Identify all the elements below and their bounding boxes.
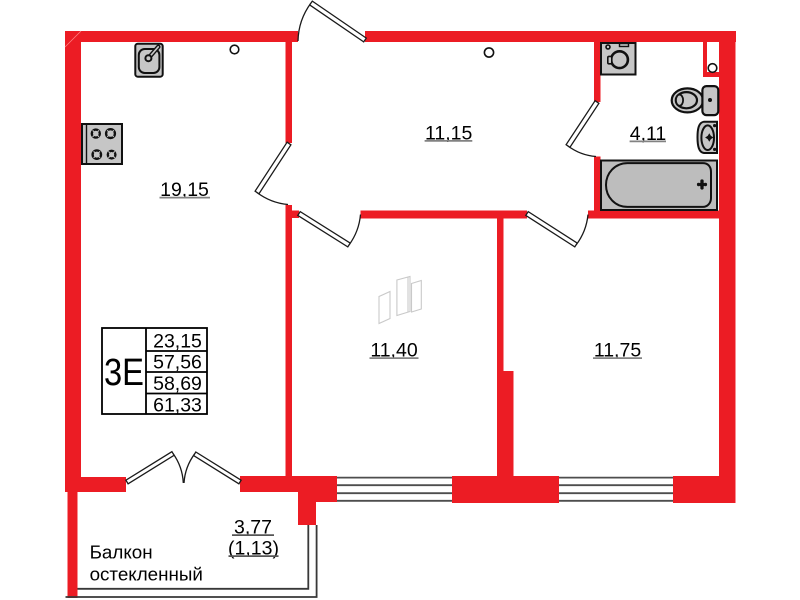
svg-text:61,33: 61,33	[153, 395, 202, 417]
svg-text:58,69: 58,69	[153, 373, 202, 395]
svg-text:Балкон: Балкон	[90, 542, 153, 563]
svg-text:57,56: 57,56	[153, 352, 202, 374]
svg-text:23,15: 23,15	[153, 331, 202, 353]
svg-text:остекленный: остекленный	[90, 564, 203, 585]
svg-text:3Е: 3Е	[104, 352, 144, 394]
